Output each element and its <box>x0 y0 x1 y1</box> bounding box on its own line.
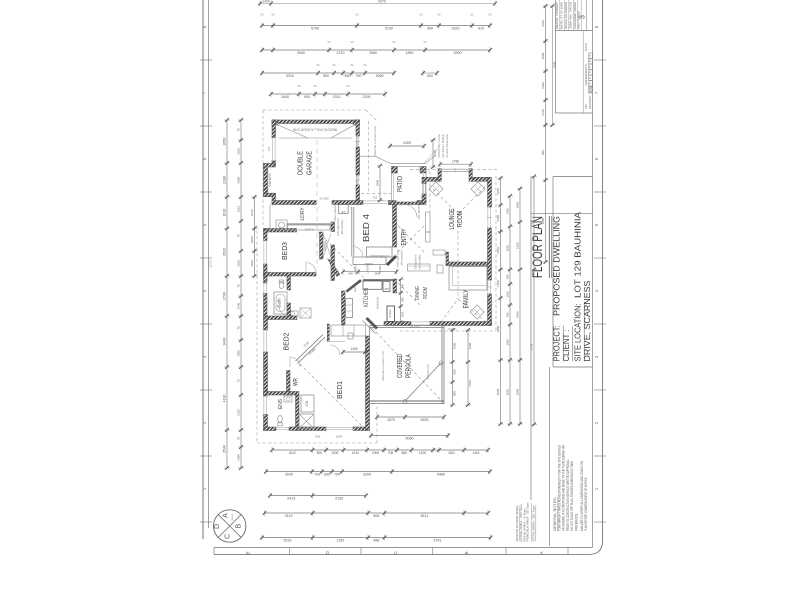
svg-text:900: 900 <box>453 391 457 396</box>
svg-text:1511: 1511 <box>448 451 455 455</box>
svg-text:A: A <box>539 551 544 554</box>
svg-text:with downlight: with downlight <box>340 219 344 234</box>
svg-text:1610: 1610 <box>222 209 226 217</box>
svg-text:WORK BENCH: WORK BENCH <box>268 173 272 187</box>
svg-text:1610: 1610 <box>250 209 254 216</box>
svg-text:560: 560 <box>345 74 351 78</box>
svg-text:1810: 1810 <box>496 247 500 254</box>
svg-text:1450: 1450 <box>505 208 509 215</box>
svg-text:LDRY: LDRY <box>300 207 306 220</box>
svg-text:DOUBLE: DOUBLE <box>296 151 305 175</box>
svg-text:WR: WR <box>294 377 300 386</box>
svg-text:2560: 2560 <box>369 51 377 55</box>
svg-text:918: 918 <box>267 146 271 151</box>
svg-text:2625: 2625 <box>421 418 429 422</box>
svg-text:910: 910 <box>478 27 484 31</box>
svg-text:5130: 5130 <box>385 27 393 31</box>
svg-text:B.BAR: B.BAR <box>388 309 392 318</box>
svg-text:806: 806 <box>316 435 321 439</box>
svg-text:BED1: BED1 <box>335 381 344 399</box>
svg-text:4300: 4300 <box>515 311 519 318</box>
svg-text:DATE: DATE <box>584 43 588 51</box>
svg-text:2000: 2000 <box>541 52 545 59</box>
svg-text:CUPBOARD: CUPBOARD <box>370 254 390 258</box>
svg-text:1670: 1670 <box>541 109 545 116</box>
svg-text:690: 690 <box>505 274 509 279</box>
svg-text:1804: 1804 <box>336 435 343 439</box>
svg-text:70: 70 <box>236 284 240 288</box>
svg-text:LINEN: LINEN <box>366 265 370 274</box>
svg-text:FAMILY: FAMILY <box>463 289 470 308</box>
svg-text:1410: 1410 <box>352 451 359 455</box>
svg-text:LINEN: LINEN <box>330 249 334 259</box>
svg-text:1700: 1700 <box>468 380 472 387</box>
svg-text:FILENAME: NORM: FILENAME: NORM <box>573 1 577 29</box>
svg-text:906: 906 <box>373 514 379 518</box>
svg-text:930: 930 <box>505 312 509 317</box>
svg-text:908: 908 <box>373 196 378 200</box>
svg-text:1306: 1306 <box>419 451 426 455</box>
svg-text:PREFERENCE.: PREFERENCE. <box>575 513 579 531</box>
svg-text:LOUNGE: LOUNGE <box>449 208 456 229</box>
svg-text:F: F <box>588 82 592 84</box>
svg-text:2320: 2320 <box>236 409 240 416</box>
svg-text:900: 900 <box>304 95 310 99</box>
svg-text:2790: 2790 <box>222 292 226 300</box>
svg-text:Wall with W09: Wall with W09 <box>417 205 421 219</box>
svg-text:900: 900 <box>323 74 329 78</box>
svg-text:70: 70 <box>236 326 240 330</box>
svg-text:70: 70 <box>236 379 240 383</box>
svg-text:rendered block base: rendered block base <box>445 134 449 158</box>
svg-text:C/B: C/B <box>341 210 346 213</box>
svg-text:REF: REF <box>384 287 389 290</box>
svg-text:3300: 3300 <box>363 473 371 477</box>
svg-text:05 L012: 05 L012 <box>410 326 420 329</box>
svg-text:70: 70 <box>236 234 240 238</box>
svg-text:DRIVE, SCARNESS: DRIVE, SCARNESS <box>583 280 592 362</box>
svg-text:1690: 1690 <box>505 339 509 346</box>
svg-text:BED2: BED2 <box>282 333 291 351</box>
svg-text:806: 806 <box>402 451 408 455</box>
svg-text:800: 800 <box>453 369 457 374</box>
svg-text:48mm Stepdown: 48mm Stepdown <box>333 203 337 221</box>
svg-text:4190: 4190 <box>222 395 226 403</box>
svg-text:2260: 2260 <box>515 242 519 249</box>
svg-text:2540: 2540 <box>222 445 226 453</box>
svg-text:COVERED: COVERED <box>397 354 404 378</box>
svg-text:6770: 6770 <box>529 343 533 350</box>
svg-text:2850: 2850 <box>222 138 226 146</box>
svg-text:SCALE: AS SHOWN: SCALE: AS SHOWN <box>564 2 568 29</box>
svg-text:JOB No: 34/25: JOB No: 34/25 <box>568 2 572 29</box>
svg-text:650: 650 <box>324 473 330 477</box>
svg-text:760: 760 <box>356 74 362 78</box>
svg-text:1006: 1006 <box>372 451 379 455</box>
svg-text:1006: 1006 <box>331 451 338 455</box>
svg-text:BED 4: BED 4 <box>361 214 371 242</box>
svg-text:1870: 1870 <box>387 418 395 422</box>
svg-text:1400: 1400 <box>236 454 240 461</box>
svg-text:LOT 129 BAUHINIA: LOT 129 BAUHINIA <box>574 211 583 298</box>
svg-text:C: C <box>588 66 592 68</box>
svg-text:B: B <box>464 551 469 554</box>
svg-text:3940: 3940 <box>297 51 305 55</box>
svg-text:1930: 1930 <box>541 82 545 89</box>
svg-text:D: D <box>214 524 221 529</box>
svg-text:2440: 2440 <box>375 179 379 186</box>
svg-text:PROJECT:: PROJECT: <box>553 326 562 362</box>
svg-text:5790: 5790 <box>311 27 319 31</box>
svg-text:2280: 2280 <box>236 176 240 183</box>
svg-text:B: B <box>236 523 243 528</box>
svg-text:2050: 2050 <box>505 244 509 251</box>
svg-text:3400: 3400 <box>222 338 226 346</box>
svg-text:3050: 3050 <box>505 388 509 395</box>
svg-text:1490: 1490 <box>350 347 357 351</box>
svg-text:1890: 1890 <box>406 51 414 55</box>
svg-text:2612: 2612 <box>289 451 296 455</box>
svg-text:700: 700 <box>334 473 340 477</box>
svg-text:SITE LOCATION:: SITE LOCATION: <box>574 304 583 362</box>
svg-text:GARAGE: GARAGE <box>305 151 314 175</box>
svg-text:1462: 1462 <box>472 451 479 455</box>
svg-text:PERGOLA: PERGOLA <box>406 354 413 378</box>
svg-text:2950: 2950 <box>496 325 500 332</box>
svg-text:E: E <box>246 551 251 554</box>
svg-text:1770: 1770 <box>209 260 213 267</box>
svg-text:1260: 1260 <box>496 215 500 222</box>
svg-text:ENS: ENS <box>278 399 284 409</box>
svg-text:53 609: 53 609 <box>319 197 329 201</box>
svg-text:with downlights: with downlights <box>418 254 422 269</box>
svg-text:PERGOLA AREA - 29 Sqm: PERGOLA AREA - 29 Sqm <box>526 502 530 542</box>
svg-text:2140: 2140 <box>433 150 437 157</box>
svg-text:FRONT: FRONT <box>232 513 234 521</box>
svg-text:TOTAL AREA - 267 Sqm: TOTAL AREA - 267 Sqm <box>531 505 535 542</box>
svg-text:2340: 2340 <box>541 20 545 27</box>
svg-text:3050: 3050 <box>496 388 500 395</box>
svg-text:1370: 1370 <box>337 51 345 55</box>
svg-text:REMOTE ROLL-A-DOOR 2748: REMOTE ROLL-A-DOOR 2748 <box>293 128 337 132</box>
svg-text:5060: 5060 <box>406 437 414 441</box>
svg-text:PLAN BEFORE COMMENCEMENT OF WO: PLAN BEFORE COMMENCEMENT OF WORKS. <box>584 477 588 531</box>
svg-text:3119: 3119 <box>285 514 293 518</box>
svg-text:1690: 1690 <box>376 74 384 78</box>
svg-text:6480: 6480 <box>437 473 445 477</box>
svg-text:2000: 2000 <box>250 236 254 243</box>
svg-text:660: 660 <box>427 74 433 78</box>
svg-text:2413: 2413 <box>287 497 295 501</box>
svg-text:3530: 3530 <box>222 248 226 256</box>
svg-text:1010: 1010 <box>505 291 509 298</box>
svg-text:KITCHEN: KITCHEN <box>364 288 370 307</box>
svg-text:806: 806 <box>317 451 323 455</box>
svg-text:3050: 3050 <box>515 388 519 395</box>
svg-text:1786: 1786 <box>452 160 459 164</box>
svg-text:1400: 1400 <box>262 0 270 4</box>
svg-text:1680: 1680 <box>541 217 545 224</box>
svg-text:1800: 1800 <box>236 350 240 357</box>
svg-text:1640: 1640 <box>281 95 289 99</box>
svg-text:1800 CM: 1800 CM <box>355 135 359 146</box>
svg-text:3: 3 <box>579 15 586 19</box>
svg-text:1360: 1360 <box>496 280 500 287</box>
svg-text:K1800: K1800 <box>304 228 313 232</box>
svg-text:8140: 8140 <box>529 219 533 226</box>
svg-text:PATIO: PATIO <box>397 176 404 192</box>
svg-text:E: E <box>588 77 592 79</box>
svg-text:1530: 1530 <box>236 260 240 267</box>
svg-text:940: 940 <box>402 283 405 288</box>
svg-text:2519: 2519 <box>283 539 291 543</box>
svg-text:PROPOSED DWELLING: PROPOSED DWELLING <box>553 216 562 316</box>
svg-text:900: 900 <box>427 27 433 31</box>
svg-text:1530: 1530 <box>236 148 240 155</box>
svg-text:1300: 1300 <box>468 342 472 349</box>
svg-text:BED3: BED3 <box>280 242 289 260</box>
svg-text:Bulkhead: Bulkhead <box>376 297 380 309</box>
svg-text:ENTRY: ENTRY <box>401 228 408 245</box>
svg-text:70: 70 <box>236 437 240 441</box>
svg-text:706: 706 <box>388 451 394 455</box>
svg-text:2190: 2190 <box>363 95 371 99</box>
svg-text:ROOM: ROOM <box>423 287 429 299</box>
svg-text:1590: 1590 <box>515 202 519 209</box>
svg-text:1610: 1610 <box>236 205 240 212</box>
svg-text:Selected concrete finish: Selected concrete finish <box>373 126 377 156</box>
svg-text:3741: 3741 <box>434 539 442 543</box>
svg-text:2634: 2634 <box>374 272 380 276</box>
svg-text:1150: 1150 <box>336 539 344 543</box>
svg-text:1896 CM: 1896 CM <box>355 174 359 185</box>
svg-text:A: A <box>223 513 230 518</box>
svg-text:70: 70 <box>236 128 240 132</box>
svg-text:3611: 3611 <box>420 514 428 518</box>
svg-text:1340: 1340 <box>236 302 240 309</box>
svg-text:1530: 1530 <box>250 260 254 267</box>
svg-text:950: 950 <box>541 150 545 155</box>
svg-text:2620: 2620 <box>452 27 460 31</box>
svg-text:1296: 1296 <box>496 188 500 195</box>
svg-text:7940: 7940 <box>553 61 557 68</box>
svg-text:D: D <box>588 71 592 73</box>
svg-text:with downlight: with downlight <box>400 250 404 265</box>
svg-text:2190: 2190 <box>335 497 343 501</box>
svg-text:DATE: 27.07.2005: DATE: 27.07.2005 <box>559 2 563 29</box>
svg-text:940: 940 <box>402 297 405 302</box>
svg-text:958: 958 <box>373 539 379 543</box>
svg-text:3310: 3310 <box>286 74 294 78</box>
svg-text:B: B <box>588 60 592 62</box>
svg-text:700: 700 <box>314 473 320 477</box>
svg-text:3030: 3030 <box>285 473 293 477</box>
svg-text:*4250mm PVC: *4250mm PVC <box>426 363 430 380</box>
svg-text:1300: 1300 <box>453 342 457 349</box>
svg-text:9076: 9076 <box>378 0 386 4</box>
svg-text:CLIENT :: CLIENT : <box>562 330 571 362</box>
svg-text:1130: 1130 <box>402 311 405 317</box>
svg-text:1310: 1310 <box>333 95 341 99</box>
svg-text:ROOM: ROOM <box>457 211 464 227</box>
svg-text:ROBE: ROBE <box>323 242 327 251</box>
svg-text:2280: 2280 <box>222 176 226 184</box>
svg-text:3900: 3900 <box>454 51 462 55</box>
svg-text:C/B: C/B <box>305 400 309 406</box>
svg-text:DINING: DINING <box>415 286 421 300</box>
svg-text:Selected concrete finish: Selected concrete finish <box>381 351 385 381</box>
svg-text:C: C <box>225 534 232 539</box>
svg-text:REF: REF <box>353 286 357 292</box>
svg-text:A: A <box>588 55 592 57</box>
svg-text:2400: 2400 <box>403 141 411 145</box>
svg-text:946: 946 <box>348 272 353 276</box>
svg-text:REVISION: REVISION <box>588 96 592 109</box>
